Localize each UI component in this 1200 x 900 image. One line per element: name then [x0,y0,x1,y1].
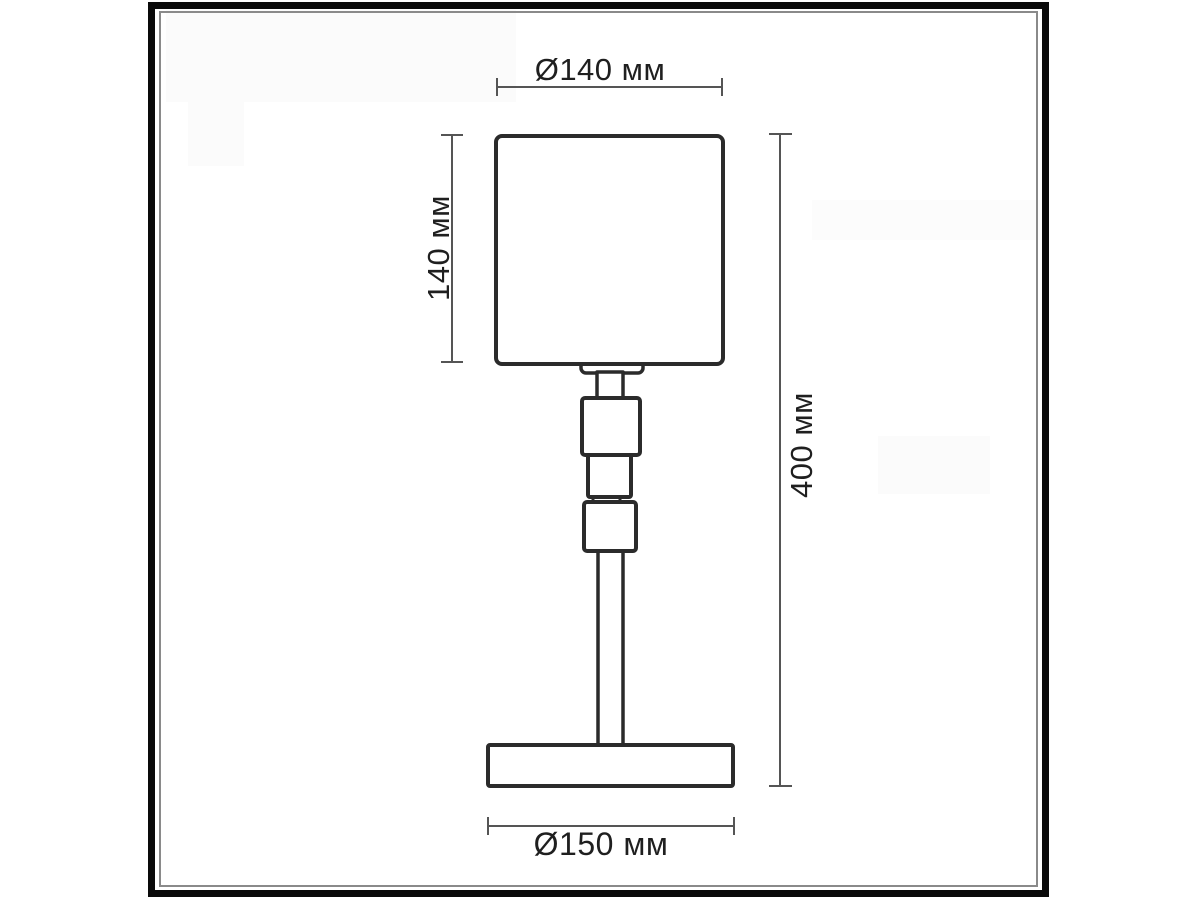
lamp-dimension-drawing: Ø140 мм 140 мм 400 мм Ø150 мм [0,0,1200,900]
base-diameter-label: Ø150 мм [534,826,669,862]
stem-knuckle-upper [582,398,640,455]
lamp-stem [598,548,623,746]
lamp-base [488,745,733,786]
scan-smudge [812,200,1040,240]
drawing-svg: Ø140 мм 140 мм 400 мм Ø150 мм [0,0,1200,900]
scan-smudge [188,80,244,166]
stem-knuckle-lower [584,502,636,551]
lamp-shade [496,136,723,364]
shade-height-label: 140 мм [421,195,456,301]
lamp-neck [597,372,623,400]
shade-diameter-label: Ø140 мм [535,52,666,87]
total-height-label: 400 мм [784,392,819,498]
stem-knuckle-middle [588,455,631,497]
scan-smudge [878,436,990,494]
